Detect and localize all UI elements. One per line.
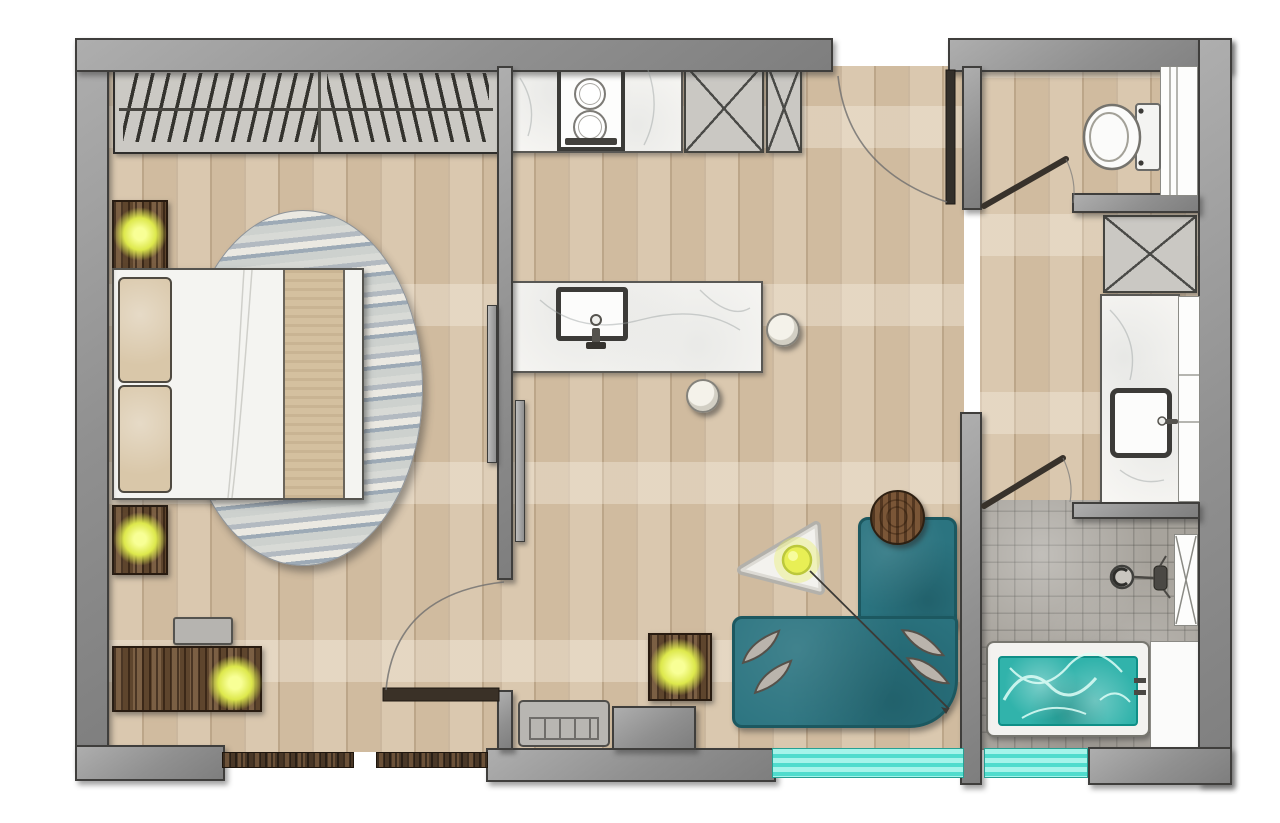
pillow (118, 277, 172, 383)
wall-bottom-right (1088, 747, 1232, 785)
wall-bedroom-stub (497, 690, 513, 750)
wall-bedroom-partition (497, 66, 513, 580)
window-bedroom (376, 752, 488, 768)
floor-plan (0, 0, 1280, 823)
wardrobe-rail (119, 108, 493, 111)
wall-bottom-pier (612, 706, 696, 750)
bathtub-water (998, 656, 1138, 726)
round-side-table (870, 490, 925, 545)
lamp-glow (649, 638, 707, 696)
wall-right (1198, 38, 1232, 785)
bathtub (986, 641, 1150, 737)
wardrobe-divider (318, 64, 321, 152)
wall-top (75, 38, 833, 72)
tall-cabinet-narrow (766, 64, 802, 153)
wall-bottom-left (75, 745, 225, 781)
shower-screen (1174, 534, 1198, 626)
lamp-glow (113, 207, 167, 261)
sliding-door-panel (487, 305, 497, 463)
tub-ledge (1150, 641, 1199, 748)
radiator-cabinet (518, 700, 610, 747)
vanity-sink (1110, 388, 1172, 458)
radiator-grille (529, 717, 599, 740)
bar-stool (766, 313, 800, 347)
pillow (118, 385, 172, 493)
window-bedroom (222, 752, 354, 768)
kitchen-island (505, 281, 763, 373)
sofa-seat (732, 616, 958, 728)
wall-shower-stub (1072, 502, 1200, 519)
wall-left (75, 38, 109, 768)
window-bath (984, 748, 1088, 778)
cooktop-controls (565, 138, 617, 145)
lamp-glow (207, 655, 263, 711)
bench (173, 617, 233, 645)
window-vanity (1178, 296, 1200, 502)
wall-entry-pier (962, 66, 982, 210)
wall-bottom-middle (486, 748, 776, 782)
lamp-glow (113, 512, 167, 566)
window-living (772, 748, 964, 778)
wall-bath-partition (960, 412, 982, 785)
wall-wc-stub (1072, 193, 1200, 213)
cooktop (557, 67, 625, 151)
window-wc (1160, 66, 1198, 196)
wardrobe (113, 62, 499, 154)
bed (112, 268, 364, 500)
island-sink (556, 287, 628, 341)
bar-stool (686, 379, 720, 413)
tall-cabinet (684, 64, 764, 153)
sliding-door-panel (515, 400, 525, 542)
bath-cabinet (1103, 215, 1197, 293)
burner-icon (574, 78, 606, 110)
bed-runner (283, 270, 345, 498)
